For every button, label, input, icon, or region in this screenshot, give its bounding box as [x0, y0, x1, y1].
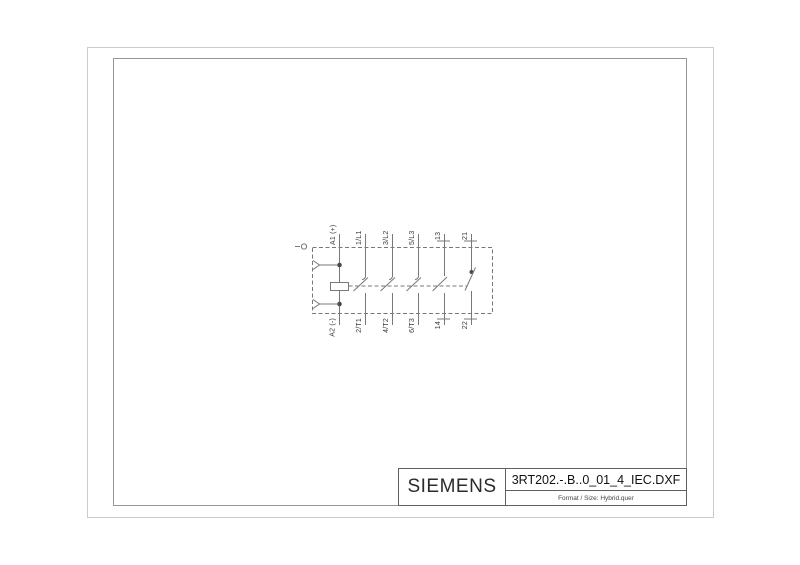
terminal-label-21: 21	[462, 232, 470, 240]
terminal-label-22: 22	[462, 321, 470, 329]
format-size-label: Format / Size: Hybrid.quer	[506, 491, 686, 505]
terminal-label-5l3: 5/L3	[409, 231, 417, 245]
terminal-label-6t3: 6/T3	[409, 318, 417, 333]
coil-terminal-fork-top	[313, 261, 337, 270]
terminal-label-a2: A2 (-)	[330, 318, 338, 337]
terminal-label-13: 13	[435, 232, 443, 240]
drawing-sheet: A1 (+) 1/L1 3/L2 5/L3 13 21 A2 (-) 2/T1 …	[0, 0, 800, 565]
coil-terminal-fork-bottom	[313, 300, 337, 309]
terminal-label-a1: A1 (+)	[330, 225, 338, 245]
terminal-label-4t2: 4/T2	[383, 318, 391, 333]
brand-logo-text: SIEMENS	[399, 469, 506, 505]
terminal-label-14: 14	[435, 321, 443, 329]
title-block-right: 3RT202.-.B..0_01_4_IEC.DXF Format / Size…	[506, 469, 686, 505]
terminal-label-1l1: 1/L1	[356, 231, 364, 245]
drawing-filename: 3RT202.-.B..0_01_4_IEC.DXF	[506, 469, 686, 491]
actuator-symbol	[295, 244, 307, 249]
terminal-label-2t1: 2/T1	[356, 318, 364, 333]
title-block: SIEMENS 3RT202.-.B..0_01_4_IEC.DXF Forma…	[398, 468, 687, 506]
terminal-label-3l2: 3/L2	[383, 231, 391, 245]
